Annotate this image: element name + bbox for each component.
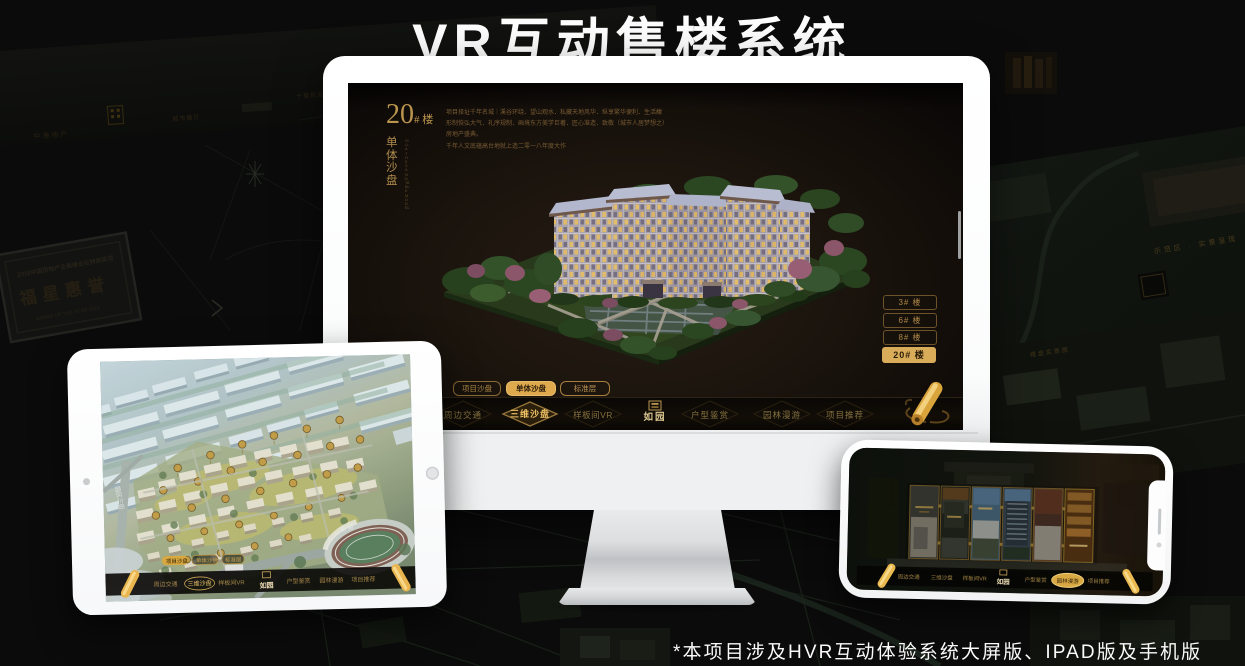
svg-text:如园: 如园 [997, 577, 1011, 586]
svg-text:如园: 如园 [260, 581, 274, 590]
